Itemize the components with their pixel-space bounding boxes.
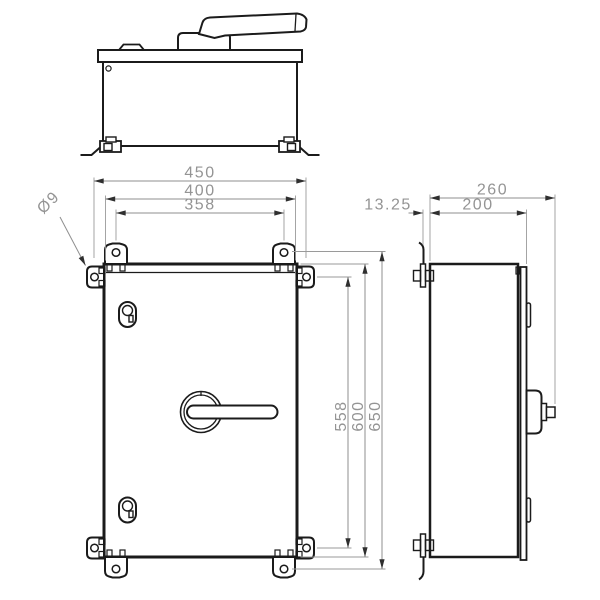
- bracket-bolt: [414, 540, 421, 551]
- dim-text-height-body: 600: [350, 400, 367, 431]
- bracket-foot: [81, 148, 101, 156]
- bracket-plate: [273, 244, 295, 265]
- drawing-canvas: 450 400 358 558 600 650 260 200 13.25 Ø9: [0, 0, 600, 600]
- enclosure-body-side: [430, 264, 518, 557]
- bracket-foot: [300, 148, 320, 156]
- handle-block: [527, 391, 542, 434]
- bracket-foot-hook: [419, 243, 424, 265]
- bracket-plate: [421, 264, 426, 287]
- dim-text-width-hole-spacing: 358: [184, 197, 215, 214]
- bracket-foot-hook: [419, 557, 424, 580]
- dim-text-bracket-offset: 13.25: [364, 197, 412, 214]
- bracket-plate: [87, 267, 104, 288]
- bracket-plate: [273, 557, 295, 578]
- bracket-plate: [297, 267, 314, 288]
- bracket-tab: [284, 137, 294, 142]
- side-bracket-right-top: [296, 267, 314, 288]
- dim-text-height-hole-spacing: 650: [367, 400, 384, 431]
- latch-bump-top-side: [527, 303, 531, 327]
- leader-line-hole-diameter: [60, 217, 86, 266]
- bracket-plate: [105, 557, 127, 578]
- side-bracket-left-bottom: [87, 538, 105, 559]
- bracket-plate: [421, 534, 426, 557]
- bracket-plate: [105, 244, 127, 265]
- bracket-tab: [106, 137, 116, 142]
- switch-handle-lever-top: [199, 14, 307, 39]
- side-bracket-left-top: [87, 267, 105, 288]
- technical-drawing: 450 400 358 558 600 650 260 200 13.25 Ø9: [0, 0, 600, 600]
- dim-text-width-overall: 450: [184, 165, 215, 182]
- dim-text-hole-diameter: Ø9: [34, 188, 63, 217]
- wall-bracket-top-view-right: [279, 137, 320, 155]
- dim-text-height-hole-spacing-side: 558: [333, 400, 350, 431]
- wall-bracket-top-view-left: [81, 137, 122, 155]
- top-view: [81, 14, 320, 156]
- side-view: [414, 243, 556, 580]
- side-bracket-right-bottom: [296, 538, 314, 559]
- bracket-plate: [297, 538, 314, 559]
- front-view: [87, 244, 314, 578]
- dim-text-depth-body: 200: [462, 197, 493, 214]
- latch-bump-bottom-side: [527, 498, 531, 522]
- switch-handle-front: [187, 406, 278, 419]
- door-flange-top: [98, 50, 302, 62]
- enclosure-body-top: [103, 62, 297, 146]
- bracket-bolt: [414, 271, 421, 282]
- handle-grip-pin: [547, 407, 556, 418]
- switch-handle-side: [527, 391, 556, 434]
- bracket-plate: [87, 538, 104, 559]
